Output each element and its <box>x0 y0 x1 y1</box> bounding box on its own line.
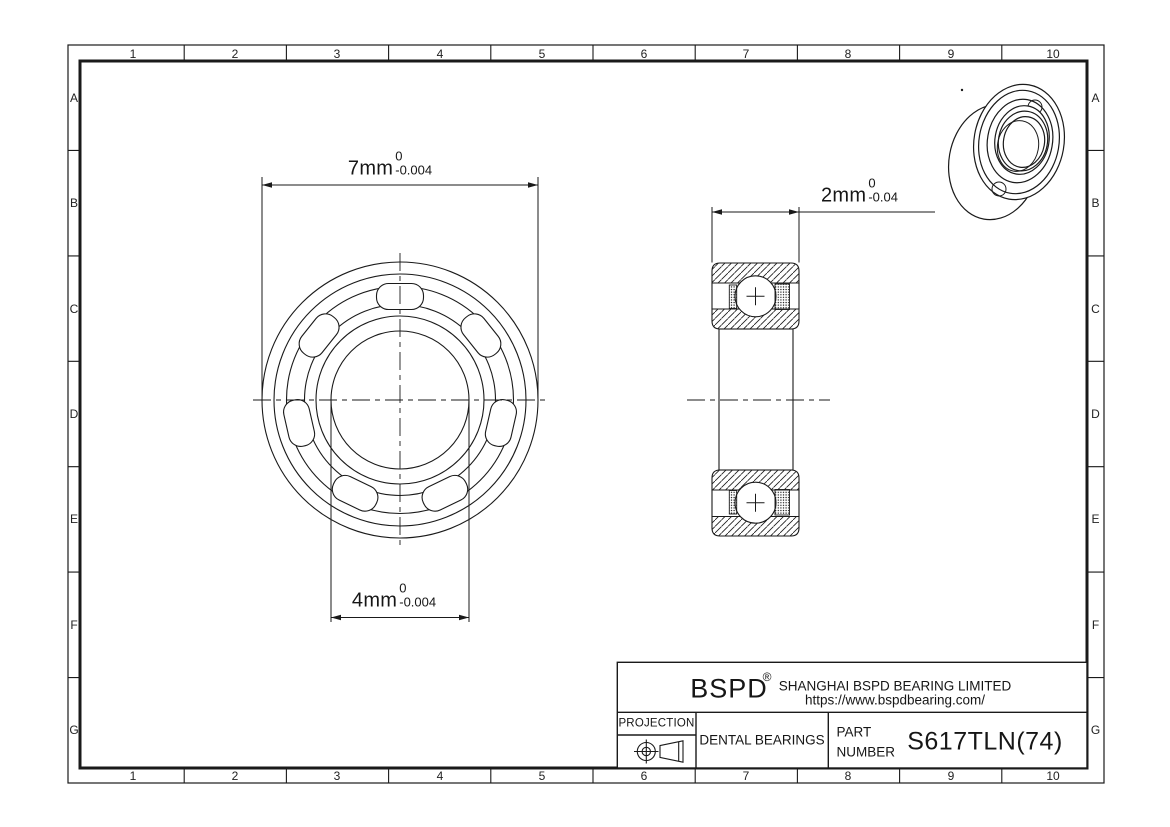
grid-row-label: B <box>70 197 78 209</box>
tolerance-upper: 0 <box>399 581 436 595</box>
grid-col-label: 6 <box>641 48 648 60</box>
grid-col-label: 7 <box>743 48 750 60</box>
tolerance-lower: -0.004 <box>395 163 432 177</box>
grid-col-label: 7 <box>743 770 750 782</box>
grid-col-label: 5 <box>539 48 546 60</box>
grid-col-label: 3 <box>334 48 341 60</box>
grid-row-label: E <box>70 513 78 525</box>
grid-row-label: F <box>1092 619 1099 631</box>
grid-row-label: D <box>1091 408 1100 420</box>
bearing-engineering-drawing: 1 2 3 4 5 6 7 8 9 10 1 2 3 4 5 6 7 8 9 1… <box>0 0 1170 827</box>
projection-label: PROJECTION <box>618 718 694 730</box>
grid-row-label: G <box>1091 724 1100 736</box>
grid-col-label: 4 <box>437 770 444 782</box>
grid-col-label: 9 <box>948 770 955 782</box>
grid-col-label: 3 <box>334 770 341 782</box>
ball-top-section <box>735 276 776 317</box>
grid-col-label: 1 <box>130 48 137 60</box>
grid-col-label: 1 <box>130 770 137 782</box>
company-name: SHANGHAI BSPD BEARING LIMITED <box>779 679 1012 693</box>
drawing-geometry <box>0 0 1170 827</box>
grid-row-label: G <box>69 724 78 736</box>
dimension-value: 7mm <box>348 158 393 178</box>
grid-col-label: 5 <box>539 770 546 782</box>
grid-col-label: 9 <box>948 48 955 60</box>
front-view <box>253 253 548 548</box>
tolerance-lower: -0.004 <box>399 595 436 609</box>
grid-col-label: 4 <box>437 48 444 60</box>
grid-col-label: 2 <box>232 48 239 60</box>
registered-trademark-icon: ® <box>763 671 772 683</box>
tolerance-upper: 0 <box>395 149 432 163</box>
bore-section <box>719 329 793 470</box>
dimension-value: 4mm <box>352 590 397 610</box>
ball-bottom-section <box>735 482 776 523</box>
isometric-view <box>940 77 1074 227</box>
grid-col-label: 10 <box>1046 48 1059 60</box>
tolerance-lower: -0.04 <box>868 190 898 204</box>
grid-row-label: D <box>70 408 79 420</box>
grid-row-label: F <box>70 619 77 631</box>
company-website: https://www.bspdbearing.com/ <box>805 693 985 707</box>
dimension-lines <box>262 177 935 622</box>
part-number-label-line2: NUMBER <box>837 745 896 759</box>
grid-row-label: A <box>1091 92 1099 104</box>
bore-diameter-dimension-text: 4mm0-0.004 <box>352 590 436 617</box>
grid-col-label: 2 <box>232 770 239 782</box>
part-number-label-line1: PART <box>837 725 872 739</box>
grid-col-label: 6 <box>641 770 648 782</box>
tolerance-upper: 0 <box>868 176 898 190</box>
stray-dot <box>961 89 963 91</box>
grid-row-label: A <box>70 92 78 104</box>
grid-col-label: 8 <box>845 770 852 782</box>
grid-row-label: E <box>1091 513 1099 525</box>
dimension-value: 2mm <box>821 185 866 205</box>
grid-row-label: C <box>70 303 79 315</box>
outer-diameter-dimension-text: 7mm0-0.004 <box>348 158 432 185</box>
width-dimension-lines <box>712 207 935 263</box>
brand-logo-text: BSPD <box>690 676 768 703</box>
grid-col-label: 10 <box>1046 770 1059 782</box>
grid-row-label: B <box>1091 197 1099 209</box>
cross-section-view <box>687 263 830 536</box>
product-type-label: DENTAL BEARINGS <box>699 733 824 747</box>
part-number-value: S617TLN(74) <box>907 729 1063 754</box>
grid-row-label: C <box>1091 303 1100 315</box>
grid-col-label: 8 <box>845 48 852 60</box>
width-dimension-text: 2mm0-0.04 <box>821 185 898 212</box>
